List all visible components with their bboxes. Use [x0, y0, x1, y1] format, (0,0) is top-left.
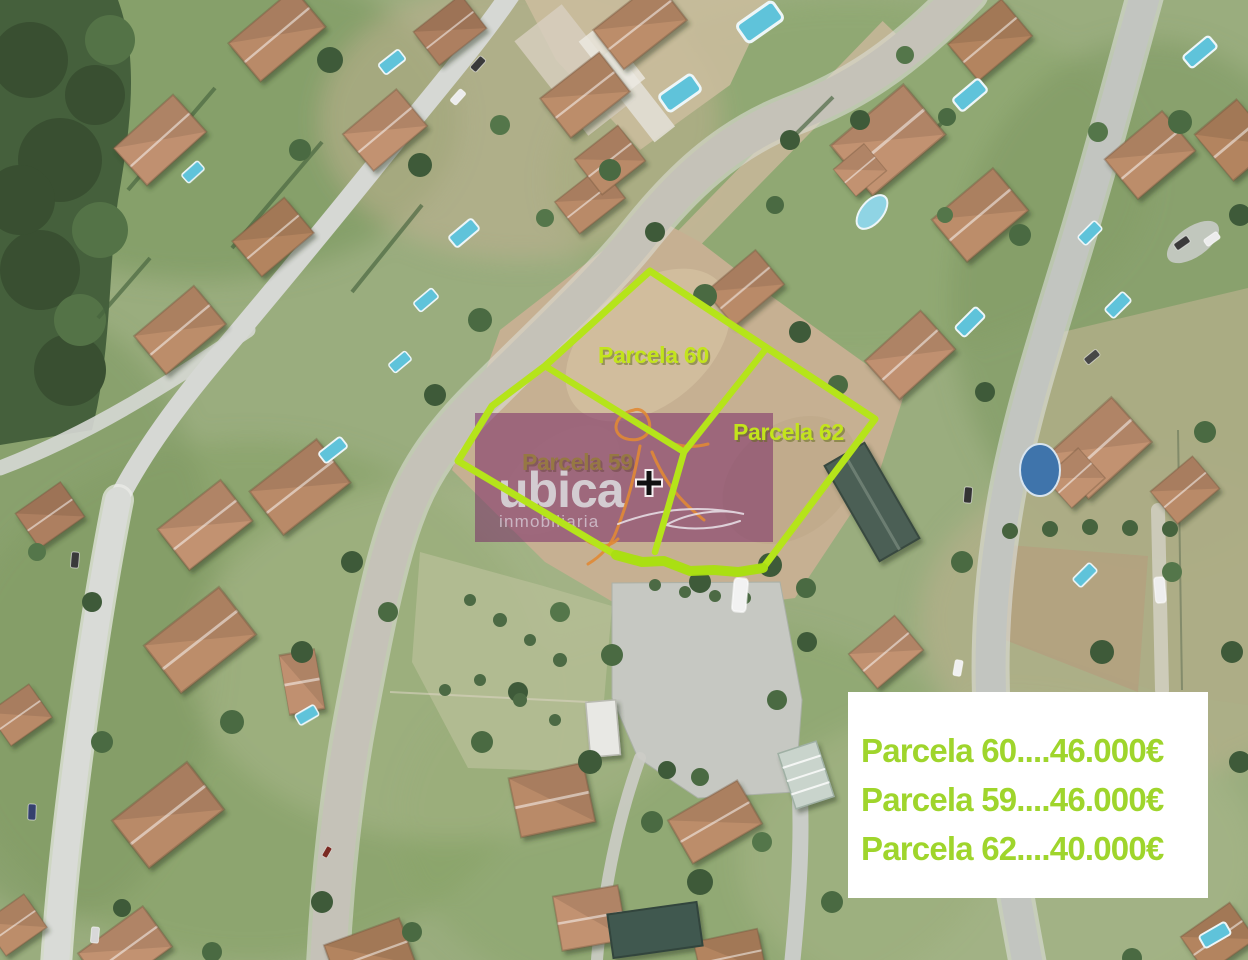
price-line-parcela-59: Parcela 59....46.000€	[861, 775, 1208, 824]
aerial-real-estate-image: Parcela 59 Parcela 59 ubica inmobiliaria…	[0, 0, 1248, 960]
parcel-60-label: Parcela 60	[598, 342, 709, 368]
price-line-parcela-62: Parcela 62....40.000€	[861, 824, 1208, 873]
parcel-outline-bottom	[616, 555, 763, 572]
price-panel: Parcela 60....46.000€ Parcela 59....46.0…	[848, 692, 1208, 898]
ubica-brand-text: ubica	[498, 462, 626, 518]
price-line-parcela-60: Parcela 60....46.000€	[861, 726, 1208, 775]
parcel-62-label: Parcela 62	[733, 419, 844, 445]
